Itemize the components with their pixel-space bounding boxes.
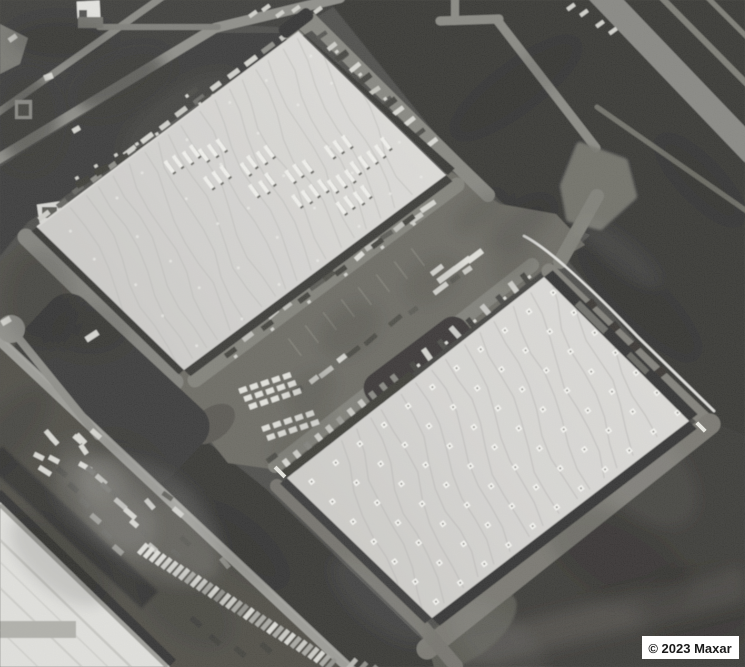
svg-text:© 2023 Maxar: © 2023 Maxar: [648, 641, 731, 656]
